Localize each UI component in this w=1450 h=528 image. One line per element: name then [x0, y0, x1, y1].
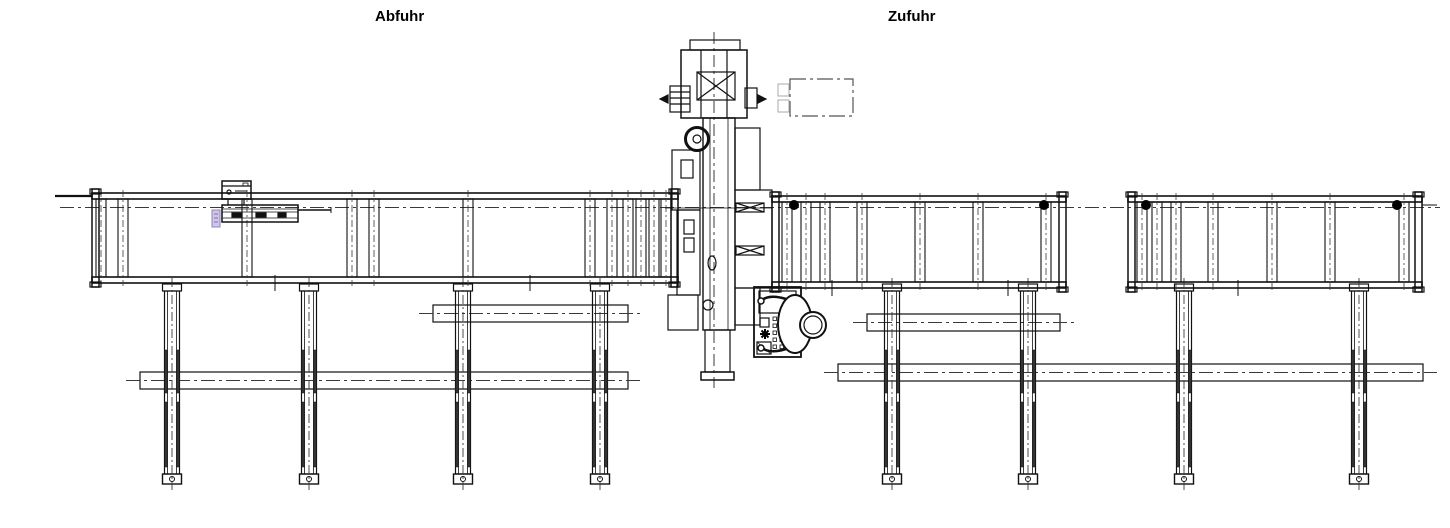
arm-chain-guide [1177, 350, 1180, 393]
material-bar-lower-right [824, 364, 1437, 381]
machine-foot [701, 372, 734, 380]
head-top-cap [690, 40, 740, 50]
conveyor-rail-bottom [1128, 282, 1422, 288]
machine-column [703, 118, 735, 330]
outfeed-conveyor [90, 189, 680, 291]
arm-chain-guide [165, 402, 168, 467]
arm-chain-guide [1033, 350, 1036, 393]
cross-transfer-arm [1350, 278, 1369, 490]
arm-chain-guide [885, 350, 888, 393]
arm-chain-guide [897, 350, 900, 393]
conveyor-rail-bottom [772, 282, 1066, 288]
material-clamp [736, 203, 764, 255]
arm-chain-guide [1189, 350, 1192, 393]
aux-box-2 [778, 100, 789, 112]
arm-chain-guide [302, 402, 305, 467]
arm-chain-guide [897, 402, 900, 467]
cross-transfer-arm [591, 278, 610, 490]
cross-transfer-arm [300, 278, 319, 490]
arm-chain-guide [302, 350, 305, 393]
arm-chain-guide [605, 350, 608, 393]
right-body-upper [735, 128, 760, 190]
operator-hand [758, 298, 764, 304]
arm-chain-guide [1033, 402, 1036, 467]
cross-transfer-arm [454, 278, 473, 490]
arm-chain-guide [456, 402, 459, 467]
arm-chain-guide [177, 402, 180, 467]
left-body-upper [672, 150, 700, 210]
datum-dot [1039, 200, 1049, 210]
conveyor-rail-top [1128, 196, 1422, 202]
aux-box-1 [778, 84, 789, 96]
arm-chain-guide [456, 350, 459, 393]
operator-hand [758, 345, 764, 351]
datum-dot [1392, 200, 1402, 210]
outfeed-label: Abfuhr [375, 8, 424, 25]
lower-wheel [703, 300, 713, 310]
arm-chain-guide [1177, 402, 1180, 467]
arm-chain-guide [593, 402, 596, 467]
saw-line-layout-drawing: Abfuhr Zufuhr [0, 0, 1450, 528]
arm-chain-guide [593, 350, 596, 393]
side-drive-block [670, 86, 690, 112]
length-stop-carriage [212, 181, 331, 227]
operator-figure [758, 295, 826, 353]
arm-chain-guide [314, 402, 317, 467]
arm-chain-guide [165, 350, 168, 393]
arm-chain-guide [605, 402, 608, 467]
arm-chain-guide [1364, 350, 1367, 393]
arm-chain-guide [177, 350, 180, 393]
arm-chain-guide [1021, 402, 1024, 467]
cross-transfer-arm [163, 278, 182, 490]
swivel-arrow-left-icon [660, 95, 668, 103]
arm-chain-guide [1352, 402, 1355, 467]
sight-glass [708, 256, 716, 270]
arm-chain-guide [468, 402, 471, 467]
cross-transfer-arm [1019, 278, 1038, 490]
panel-switch [760, 318, 769, 327]
left-body-lower [668, 295, 698, 330]
material-bar-upper-right [853, 314, 1074, 331]
material-bar-upper-left [419, 305, 642, 322]
operator-arm-upper [762, 297, 786, 300]
material-bar-lower-left [126, 372, 642, 389]
arm-chain-guide [1352, 350, 1355, 393]
technical-drawing: Abfuhr Zufuhr [0, 0, 1450, 528]
conveyor-rail-top [772, 196, 1066, 202]
cross-transfer-arm [883, 278, 902, 490]
cross-transfer-arm [1175, 278, 1194, 490]
arm-chain-guide [885, 402, 888, 467]
reserved-area-outline [790, 79, 853, 116]
estop-star-icon [760, 329, 770, 339]
infeed-label: Zufuhr [888, 8, 936, 25]
arm-chain-guide [314, 350, 317, 393]
datum-dot [789, 200, 799, 210]
datum-dot [1141, 200, 1151, 210]
right-body-lower [735, 288, 760, 325]
arm-chain-guide [1189, 402, 1192, 467]
lower-column [705, 330, 730, 372]
swivel-arrow-right-icon [758, 95, 766, 103]
clamp-handwheel [686, 128, 709, 151]
saw-machine [660, 32, 772, 388]
arm-chain-guide [1021, 350, 1024, 393]
id-tag [212, 210, 220, 227]
arm-chain-guide [1364, 402, 1367, 467]
arm-chain-guide [468, 350, 471, 393]
